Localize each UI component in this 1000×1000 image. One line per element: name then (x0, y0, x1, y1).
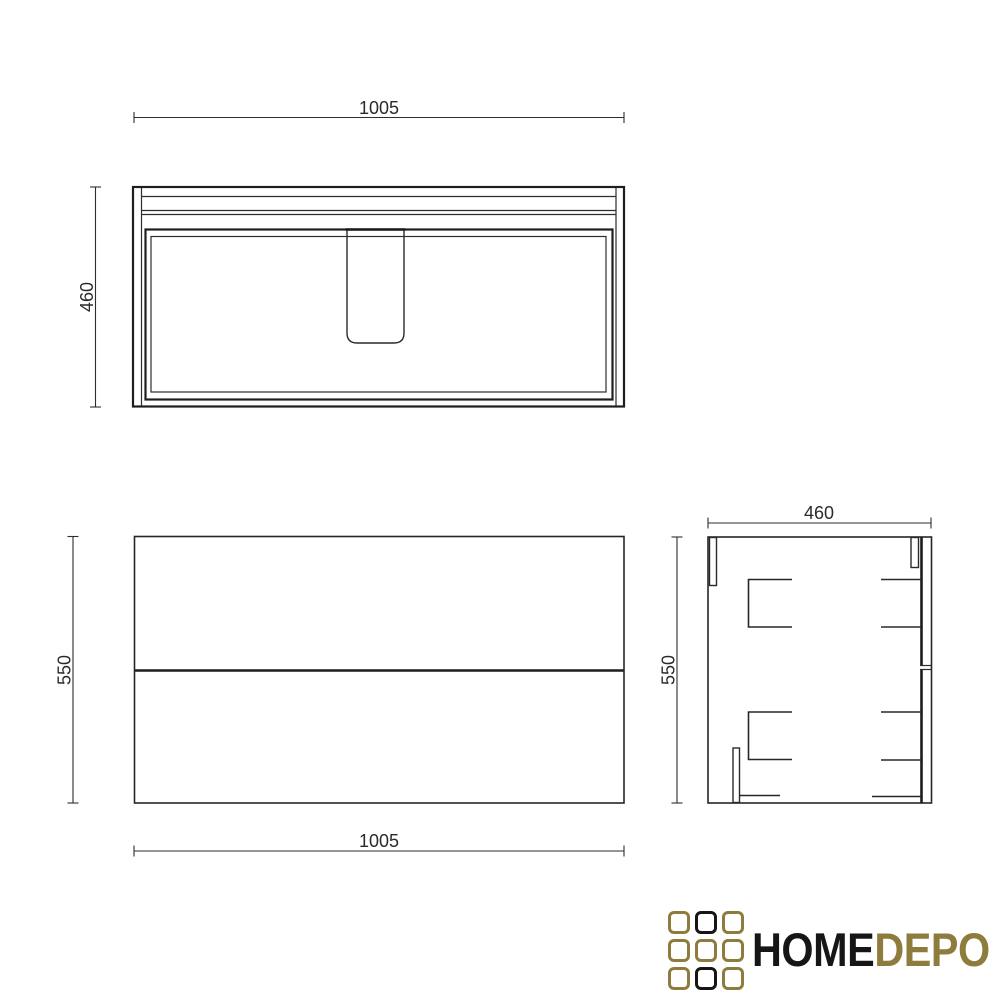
front-view-drawing: 550 1005 (55, 537, 625, 857)
logo-grid-square (722, 967, 744, 990)
mounting-bracket-top-right (911, 538, 919, 568)
vanity-dimension-drawing: 1005 460 (0, 0, 1000, 1000)
top-view-depth-dimension: 460 (77, 187, 101, 407)
front-view-width-dimension: 1005 (134, 831, 624, 857)
logo-grid-square (668, 939, 690, 962)
upper-drawer-runner (749, 580, 922, 628)
side-view-height-dimension: 550 (659, 537, 683, 803)
technical-drawing-page: 1005 460 (0, 0, 1000, 1000)
logo-grid-square (722, 939, 744, 962)
top-view-drawing: 1005 460 (77, 98, 624, 407)
cabinet-side-outline (708, 537, 932, 803)
lower-drawer-runner (749, 712, 922, 760)
side-view-depth-label: 460 (804, 503, 834, 523)
faucet-cutout (346, 230, 406, 344)
logo-grid-square (695, 967, 717, 990)
logo-grid-square (668, 911, 690, 934)
top-view-depth-label: 460 (77, 282, 97, 312)
side-view-drawing: 460 550 (659, 503, 932, 803)
logo-grid-square (695, 939, 717, 962)
side-view-depth-dimension: 460 (708, 503, 931, 529)
countertop-outline (133, 187, 624, 407)
logo-grid-square (722, 911, 744, 934)
brand-name-primary: HOME (752, 923, 874, 976)
basin-rim-outer (146, 230, 613, 400)
brand-logo: HOMEDEPO (752, 926, 990, 973)
mounting-bracket-bottom-left (733, 748, 740, 803)
top-view-width-dimension: 1005 (134, 98, 624, 123)
logo-grid-square (695, 911, 717, 934)
basin-rim-inner (151, 237, 606, 393)
front-view-height-label: 550 (55, 655, 75, 685)
mounting-bracket-top-left (710, 538, 717, 586)
brand-name-secondary: DEPO (874, 923, 989, 976)
side-view-height-label: 550 (659, 655, 679, 685)
back-panel-line (920, 538, 931, 803)
top-view-width-label: 1005 (359, 98, 399, 118)
front-view-height-dimension: 550 (55, 537, 79, 804)
front-view-width-label: 1005 (359, 831, 399, 851)
logo-grid-icon (668, 911, 744, 990)
logo-grid-square (668, 967, 690, 990)
